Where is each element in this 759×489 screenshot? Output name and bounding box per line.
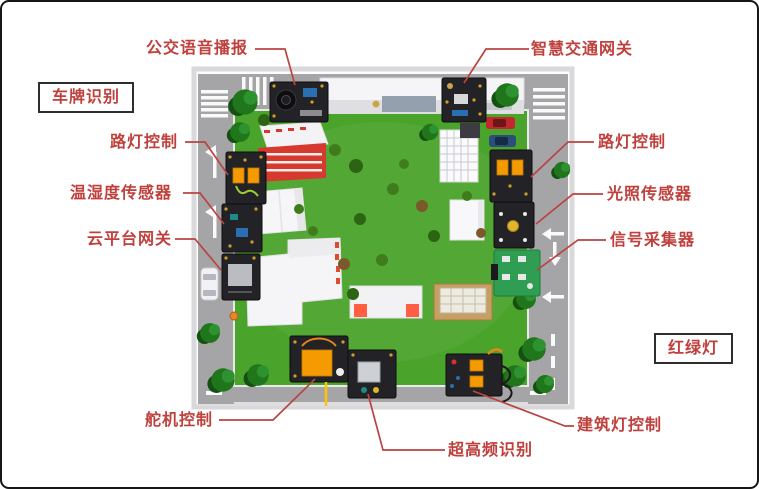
red-car: [486, 117, 515, 129]
label-license-plate-recognition: 车牌识别: [38, 82, 134, 113]
label-light-sensor: 光照传感器: [607, 186, 692, 203]
hydrant: [230, 312, 238, 320]
building-grid-tower: [440, 123, 480, 182]
label-bus-voice-broadcast: 公交语音播报: [146, 40, 248, 57]
module-street-light-control-right: [490, 150, 532, 202]
module-building-light-control: [446, 349, 512, 402]
label-smart-traffic-gateway: 智慧交通网关: [531, 41, 633, 58]
module-uhf-rfid: [348, 350, 396, 398]
module-signal-collector: [491, 250, 540, 296]
label-traffic-light: 红绿灯: [654, 333, 733, 364]
module-light-sensor: [494, 202, 534, 248]
label-building-light-control: 建筑灯控制: [577, 417, 662, 434]
module-temp-humidity-sensor: [222, 204, 262, 252]
white-car: [201, 268, 218, 300]
label-uhf-rfid: 超高频识别: [448, 442, 533, 459]
label-cloud-platform-gateway: 云平台网关: [87, 231, 172, 248]
module-street-light-control-left: [226, 152, 266, 204]
building-flat-roof: [350, 286, 422, 318]
label-street-light-control-right: 路灯控制: [598, 134, 666, 151]
building-red: [258, 122, 328, 182]
module-cloud-platform-gateway: [222, 254, 260, 300]
building-greenhouse: [434, 284, 492, 320]
module-bus-voice-broadcast: [270, 82, 328, 122]
label-temp-humidity-sensor: 温湿度传感器: [70, 185, 172, 202]
label-signal-collector: 信号采集器: [610, 232, 695, 249]
annotated-smart-city-figure: 公交语音播报 智慧交通网关 车牌识别 路灯控制 温湿度传感器 云平台网关 路灯控…: [0, 0, 759, 489]
module-smart-traffic-gateway: [442, 78, 486, 122]
label-street-light-control-left: 路灯控制: [110, 134, 178, 151]
blue-car: [489, 135, 516, 147]
label-servo-control: 舵机控制: [145, 412, 213, 429]
